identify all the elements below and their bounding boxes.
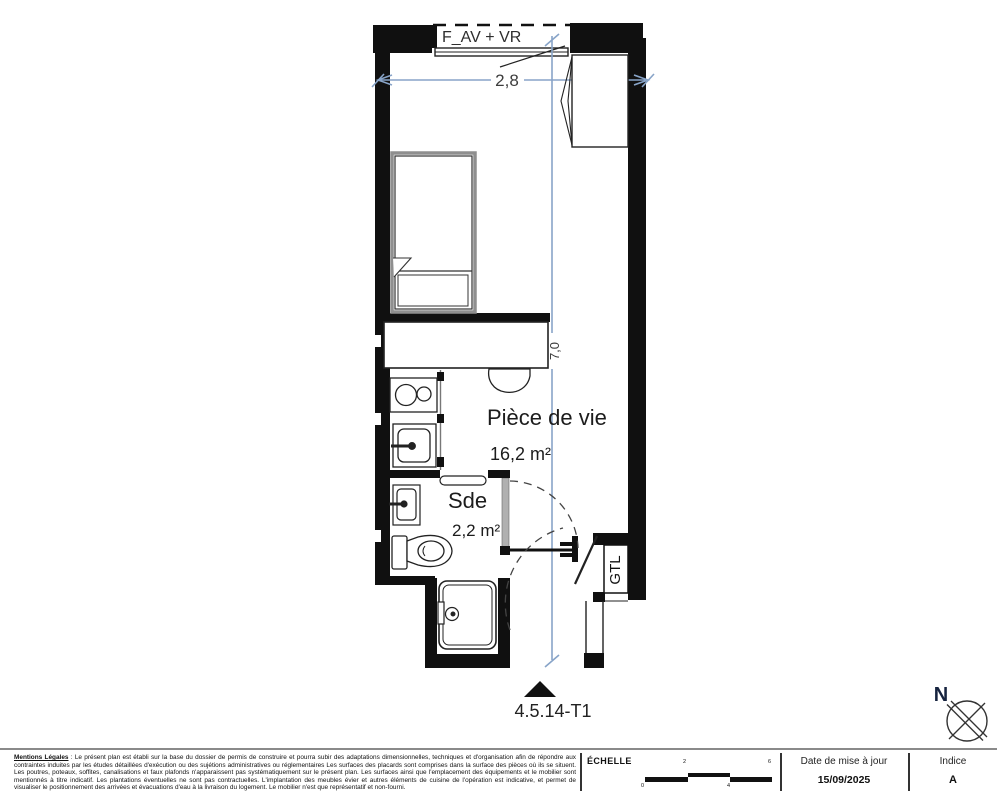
kitchen-partition xyxy=(437,370,444,470)
shower-room-label: Sde xyxy=(448,488,487,513)
kitchen-counter xyxy=(384,322,548,368)
north-compass-icon: N xyxy=(934,684,987,741)
update-date-value: 15/09/2025 xyxy=(781,774,907,786)
unit-label: 4.5.14-T1 xyxy=(514,701,591,721)
cooktop xyxy=(390,378,437,412)
kitchen-sink xyxy=(391,424,436,467)
scale-tick: 0 xyxy=(641,783,644,789)
footer-divider-1 xyxy=(580,753,582,791)
shower-room-area: 2,2 m² xyxy=(452,521,501,540)
door-strike xyxy=(572,536,578,562)
gtl-label: GTL xyxy=(607,555,624,584)
wardrobe xyxy=(561,55,628,147)
update-date-label: Date de mise à jour xyxy=(781,756,907,767)
floor-plan-drawing: F_AV + VR 2,8 7,0 xyxy=(0,0,997,748)
scale-tick: 6 xyxy=(768,759,771,765)
bed xyxy=(392,153,475,312)
scale-section: ÉCHELLE 2 6 0 4 xyxy=(584,750,778,796)
scale-tick: 2 xyxy=(683,759,686,765)
corridor-walls xyxy=(586,601,628,653)
window xyxy=(435,46,568,67)
gtl-box: GTL xyxy=(604,545,628,593)
north-label: N xyxy=(934,684,948,706)
title-block: Mentions Légales : Le présent plan est é… xyxy=(0,748,997,802)
washbasin xyxy=(389,485,420,525)
scale-label: ÉCHELLE xyxy=(587,756,632,766)
shower xyxy=(438,581,496,649)
legal-body: : Le présent plan est établi sur la base… xyxy=(14,754,576,791)
scale-tick: 4 xyxy=(727,783,730,789)
scale-bar-segment xyxy=(688,773,730,778)
scale-bar-segment xyxy=(730,777,772,782)
shower-room-door xyxy=(440,476,486,485)
floor-plan: F_AV + VR 2,8 7,0 xyxy=(0,0,997,748)
indice-label: Indice xyxy=(909,756,997,767)
entrance-marker-icon xyxy=(524,681,556,697)
indice-value: A xyxy=(909,774,997,786)
living-room-label: Pièce de vie xyxy=(487,405,607,430)
legal-title: Mentions Légales xyxy=(14,754,69,761)
indice-section: Indice A xyxy=(909,750,997,796)
width-dimension-label: 2,8 xyxy=(495,71,519,90)
date-section: Date de mise à jour 15/09/2025 xyxy=(781,750,907,796)
kitchen-basin xyxy=(489,369,530,392)
legal-mentions: Mentions Légales : Le présent plan est é… xyxy=(14,754,576,792)
scale-bar-segment xyxy=(645,777,688,782)
shower-column xyxy=(438,602,444,624)
window-label: F_AV + VR xyxy=(442,29,521,46)
living-room-area: 16,2 m² xyxy=(490,444,551,464)
toilet xyxy=(392,535,452,569)
length-dimension-label: 7,0 xyxy=(547,342,562,360)
partition-wall xyxy=(500,470,510,555)
